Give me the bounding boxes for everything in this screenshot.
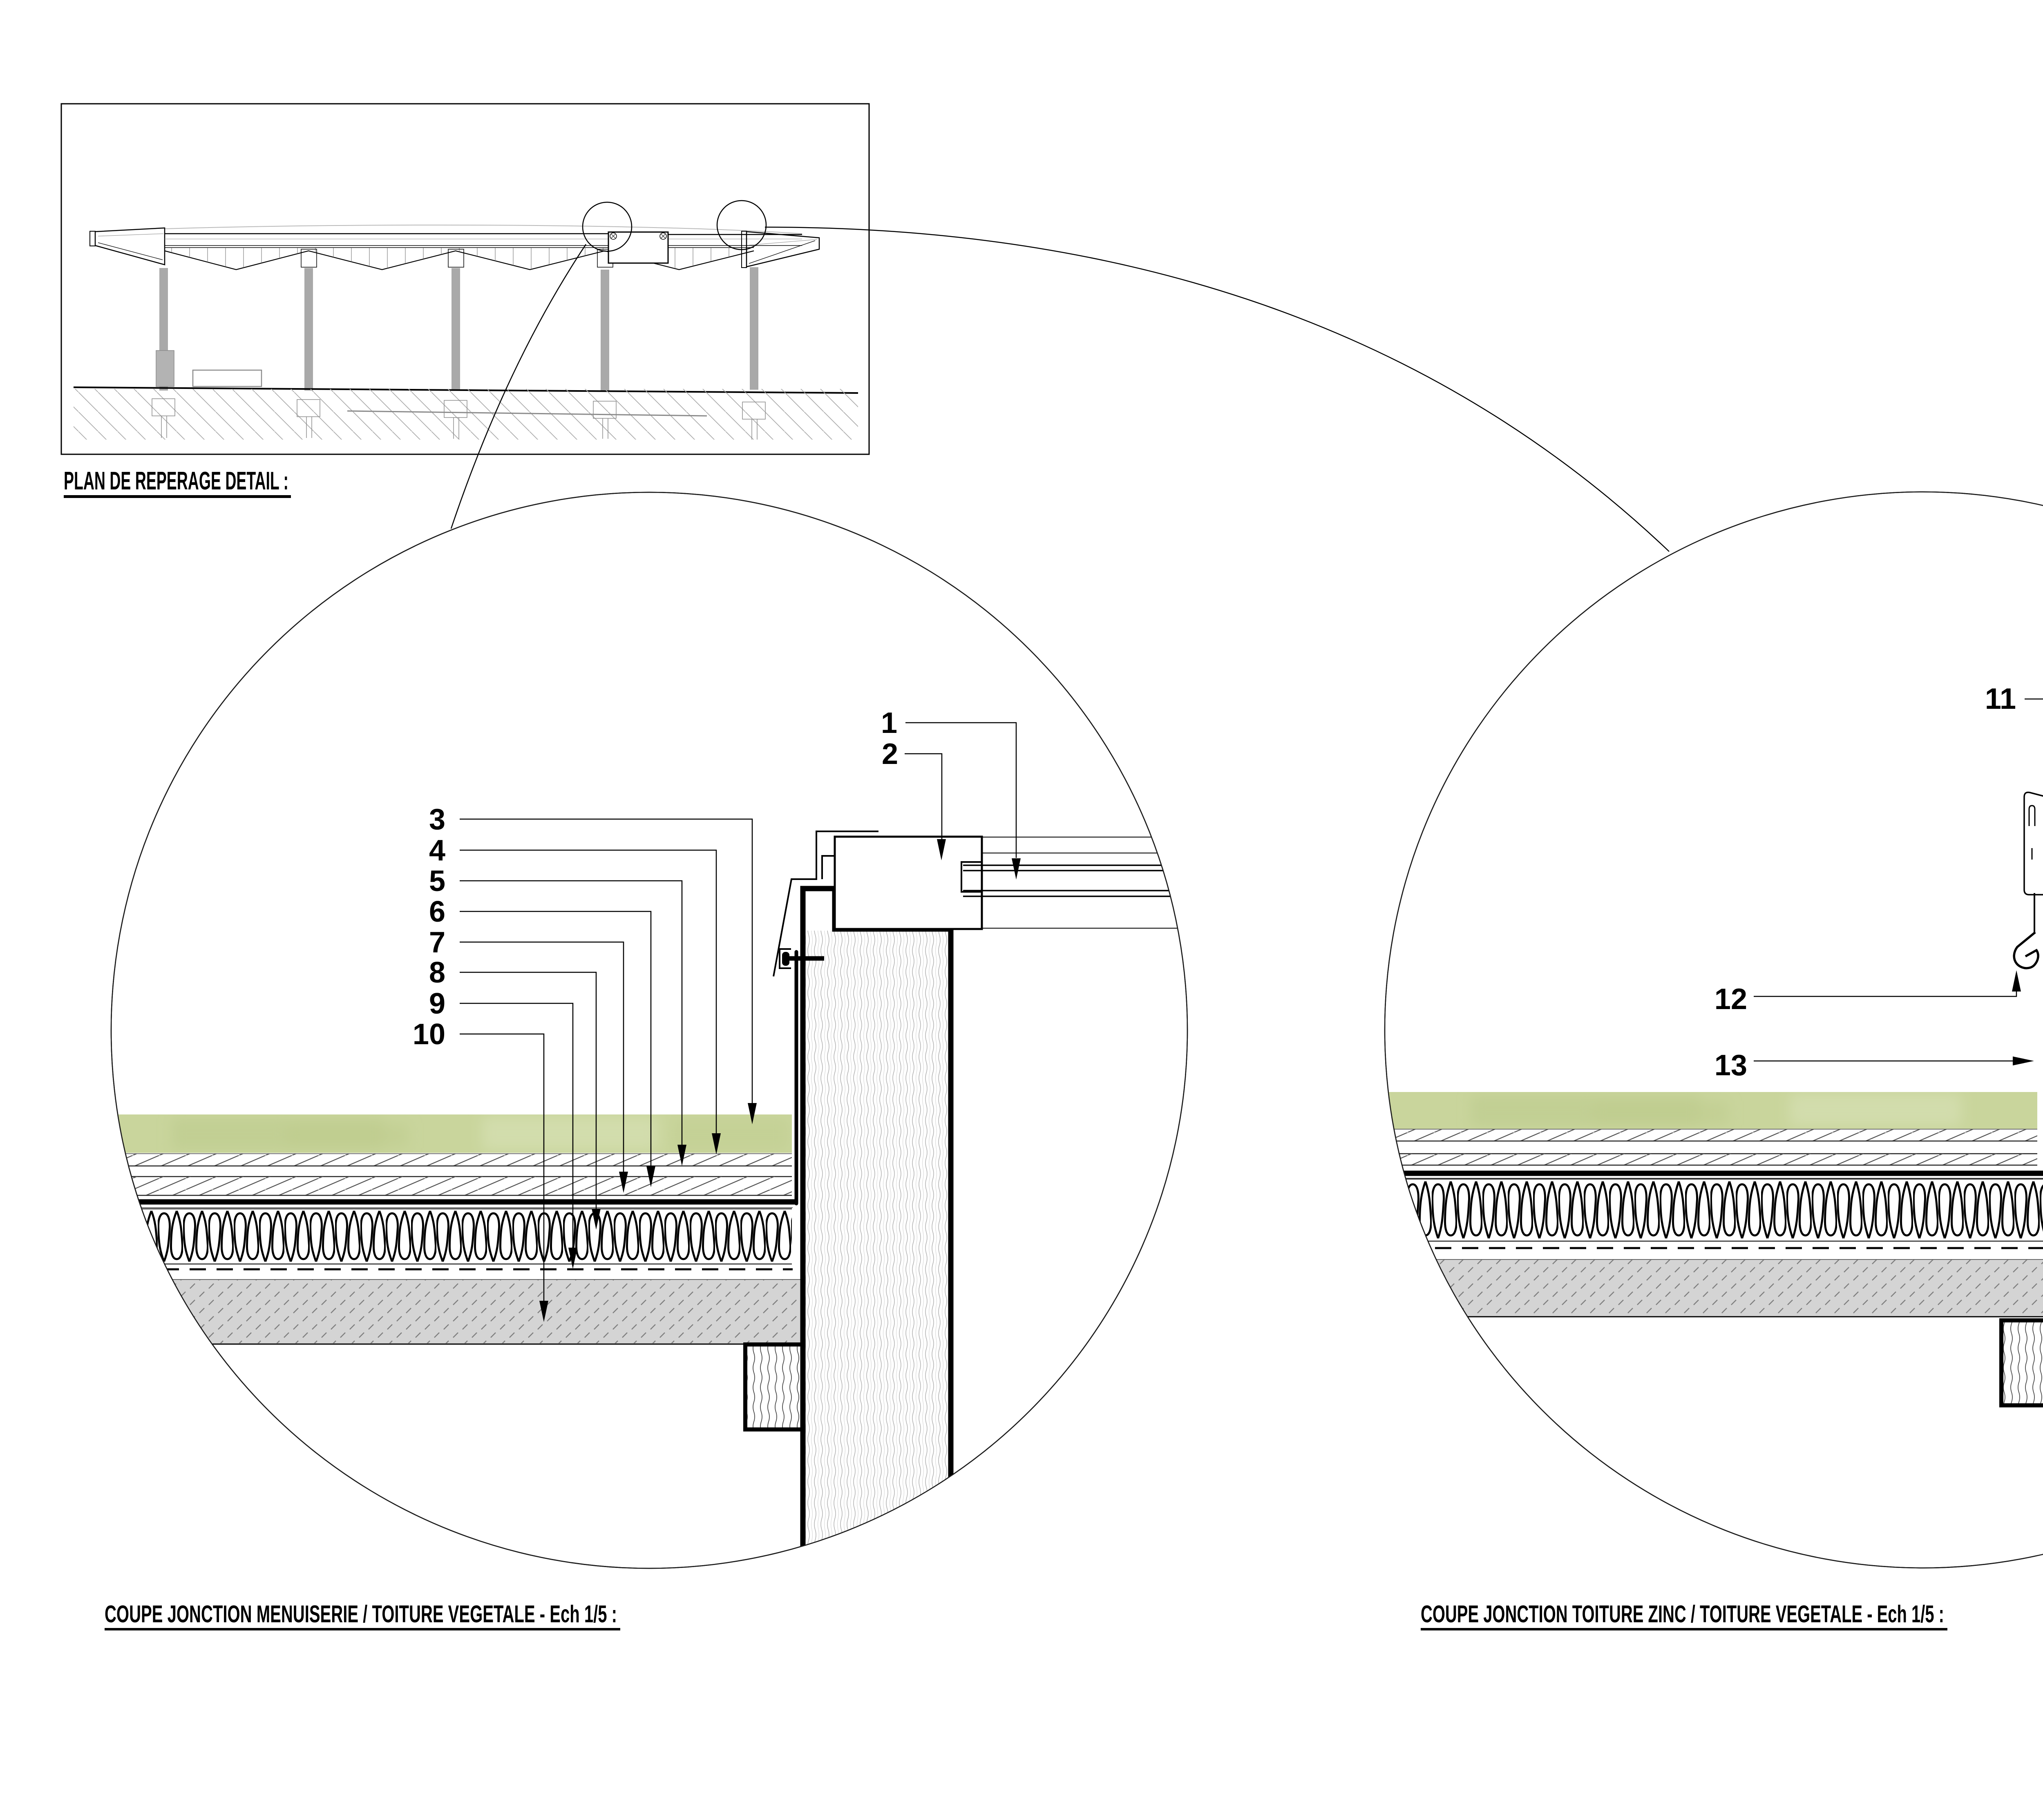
svg-text:2: 2 — [882, 738, 898, 770]
svg-text:4: 4 — [429, 834, 445, 867]
svg-text:7: 7 — [429, 926, 445, 959]
svg-text:11: 11 — [1985, 683, 2016, 715]
svg-text:12: 12 — [1714, 983, 1747, 1016]
svg-text:COUPE JONCTION TOITURE ZINC /: COUPE JONCTION TOITURE ZINC / TOITURE VE… — [1421, 1601, 1944, 1628]
svg-text:1: 1 — [881, 707, 897, 739]
svg-text:8: 8 — [429, 956, 445, 989]
svg-text:COUPE JONCTION MENUISERIE / TO: COUPE JONCTION MENUISERIE / TOITURE VEGE… — [105, 1601, 617, 1628]
svg-text:3: 3 — [429, 803, 445, 836]
svg-text:10: 10 — [413, 1018, 445, 1051]
svg-text:9: 9 — [429, 987, 445, 1020]
svg-text:13: 13 — [1714, 1049, 1747, 1082]
svg-text:6: 6 — [429, 895, 445, 928]
svg-text:5: 5 — [429, 865, 445, 898]
svg-text:PLAN DE REPERAGE DETAIL :: PLAN DE REPERAGE DETAIL : — [64, 467, 288, 495]
